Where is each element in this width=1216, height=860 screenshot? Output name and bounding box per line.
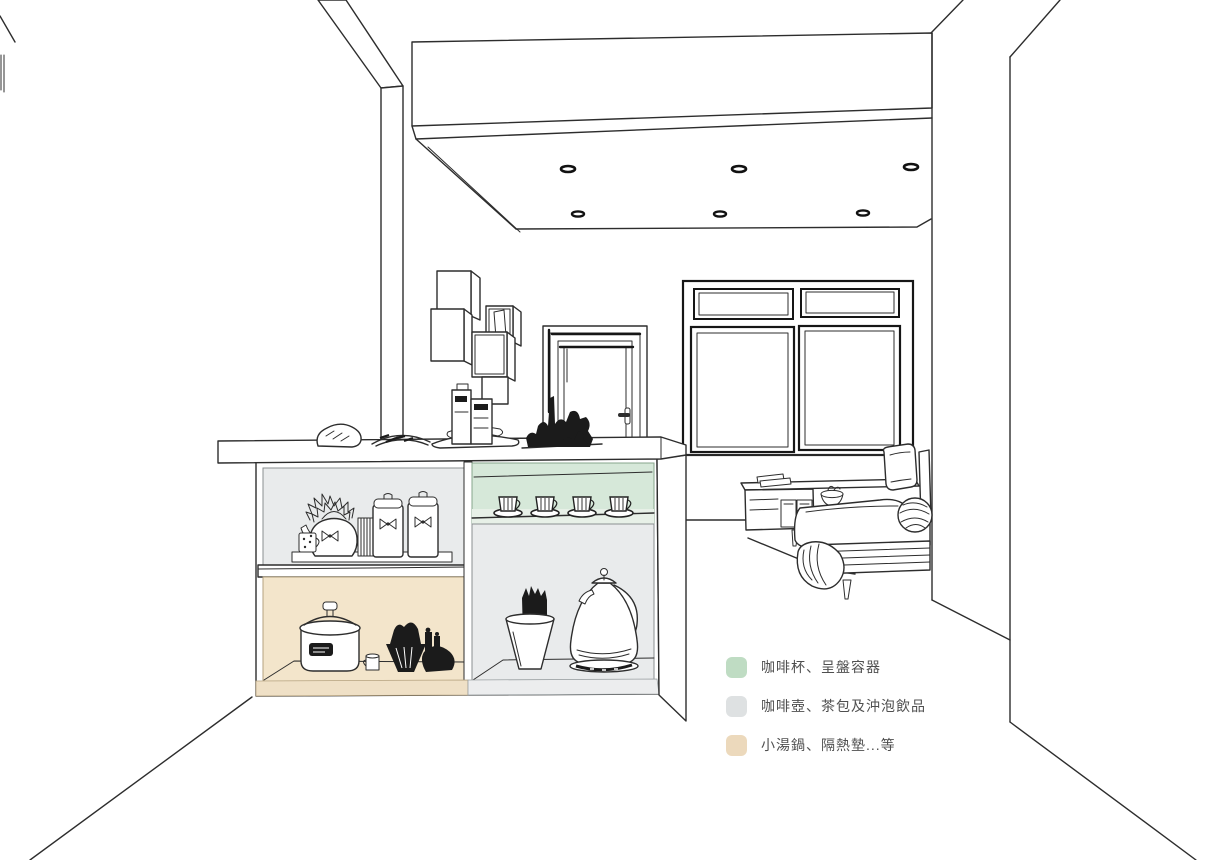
spotlight: [572, 211, 584, 216]
canister: [373, 494, 403, 558]
sloped-beam: [318, 0, 403, 88]
spotlight: [904, 164, 918, 170]
soup-pot-rim: [300, 621, 360, 635]
round-cushion: [898, 498, 932, 532]
cube-side: [507, 332, 515, 381]
edge-beam-fragment: [0, 16, 15, 42]
spotlight: [732, 166, 746, 172]
interior-rendering: 咖啡杯、呈盤容器 咖啡壺、茶包及沖泡飲品 小湯鍋、隔熱墊...等: [0, 0, 1216, 860]
wall-floor-corner: [932, 600, 1010, 640]
right-wall: [931, 0, 1196, 860]
cube-side: [464, 309, 472, 365]
legend: 咖啡杯、呈盤容器 咖啡壺、茶包及沖泡飲品 小湯鍋、隔熱墊...等: [726, 656, 926, 773]
legend-item-soup: 小湯鍋、隔熱墊...等: [726, 734, 926, 756]
lid-knob: [323, 602, 337, 610]
bowl-on-console: [821, 486, 843, 506]
right-wall-top-diagonal: [931, 0, 963, 33]
lid-knob: [601, 569, 608, 576]
legend-swatch-gray: [726, 696, 747, 717]
pillow: [884, 444, 918, 490]
ceiling-fold-left: [416, 139, 516, 229]
cabinet-divider: [464, 462, 472, 682]
handle-lever: [618, 413, 630, 417]
island-end-panel: [657, 455, 686, 721]
spotlight: [857, 210, 869, 215]
ceiling: [0, 0, 932, 232]
ceiling-lights: [561, 164, 918, 217]
kitchen-floor-diagonal: [30, 697, 252, 860]
striped-jar: [358, 518, 373, 556]
sofa-leg: [843, 580, 851, 599]
cube-side: [471, 271, 480, 320]
structural-column: [381, 86, 403, 443]
legend-label: 咖啡杯、呈盤容器: [761, 657, 881, 677]
line-drawing: [0, 0, 1216, 860]
front-beam: [412, 33, 932, 126]
mug: [299, 533, 316, 552]
window: [683, 281, 913, 455]
back-wall-top-edge: [516, 219, 931, 229]
kick-tan: [256, 680, 468, 696]
window-pane-left: [691, 327, 794, 452]
spotlight: [561, 166, 575, 172]
right-wall-top-diagonal-2: [1010, 0, 1060, 57]
spotlight: [714, 211, 726, 216]
legend-swatch-tan: [726, 735, 747, 756]
legend-label: 咖啡壺、茶包及沖泡飲品: [761, 696, 926, 716]
ceiling-fold-left-2: [428, 147, 520, 232]
legend-label: 小湯鍋、隔熱墊...等: [761, 735, 896, 755]
bread-loaf: [317, 424, 361, 447]
wall-cube-shelves: [431, 271, 521, 404]
near-wall-floor-diagonal: [1010, 722, 1196, 860]
legend-item-cups: 咖啡杯、呈盤容器: [726, 656, 926, 678]
edge-column-fragment: [1, 55, 4, 92]
cube-box: [431, 309, 464, 361]
pot-label: [309, 643, 333, 656]
kitchen-island: [218, 437, 686, 721]
kick-gray: [468, 679, 659, 695]
canister: [408, 492, 438, 558]
sofa: [795, 444, 932, 599]
legend-item-pots: 咖啡壺、茶包及沖泡飲品: [726, 695, 926, 717]
cube-box-open: [472, 332, 507, 377]
window-pane-right: [799, 326, 900, 450]
legend-swatch-green: [726, 657, 747, 678]
